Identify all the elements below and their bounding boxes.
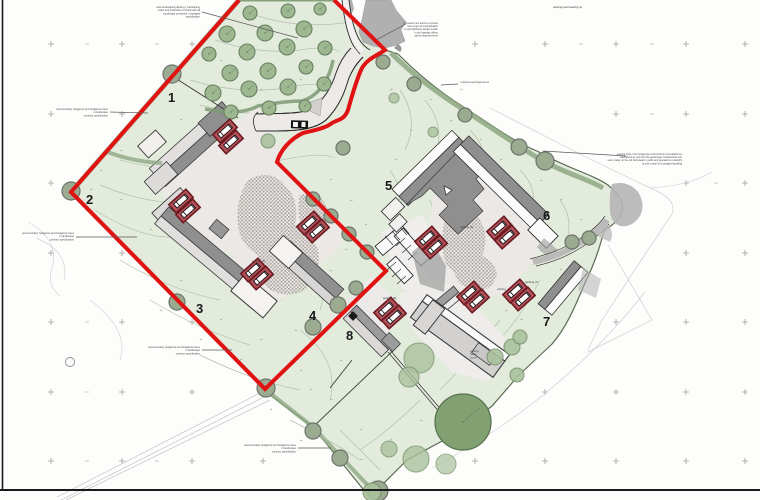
svg-text:existing trees/hedgerow ret: existing trees/hedgerow ret — [460, 81, 489, 84]
svg-text:parking (4): parking (4) — [252, 259, 265, 263]
svg-text:5: 5 — [385, 178, 392, 193]
svg-text:4: 4 — [309, 308, 317, 323]
svg-text:parking/road leading up: parking/road leading up — [553, 5, 583, 9]
svg-text:parking (7): parking (7) — [525, 280, 538, 284]
svg-text:visiting: visiting — [497, 287, 506, 291]
svg-text:6: 6 — [543, 208, 550, 223]
svg-text:parking (6): parking (6) — [460, 225, 473, 229]
svg-text:8: 8 — [346, 328, 353, 343]
svg-text:2: 2 — [86, 192, 93, 207]
svg-text:parking (8): parking (8) — [383, 296, 396, 300]
svg-text:3: 3 — [196, 301, 203, 316]
svg-text:1: 1 — [168, 90, 175, 105]
svg-text:7: 7 — [543, 314, 550, 329]
